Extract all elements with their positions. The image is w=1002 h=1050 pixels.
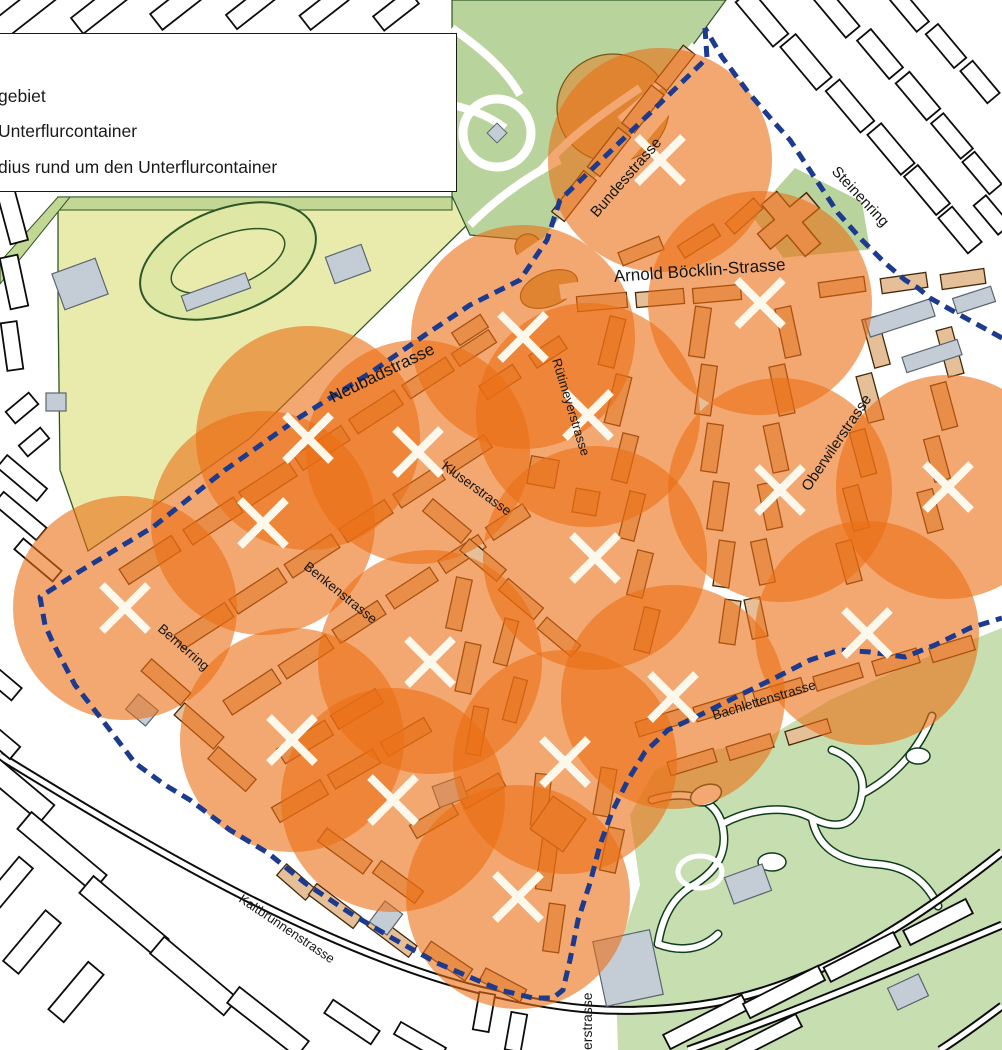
map-page: BundesstrasseSteinenringArnold Böcklin-S…: [0, 0, 1002, 1050]
legend-item-radius: dius rund um den Unterflurcontainer: [0, 157, 277, 178]
zoo-pond: [906, 748, 930, 764]
building-gray: [46, 393, 66, 411]
street-label: erstrasse: [579, 992, 595, 1050]
legend-item-unterflurcontainer: Unterflurcontainer: [0, 121, 137, 142]
map-legend: gebiet Unterflurcontainer dius rund um d…: [0, 33, 457, 192]
legend-item-pilot-area: gebiet: [0, 86, 46, 107]
